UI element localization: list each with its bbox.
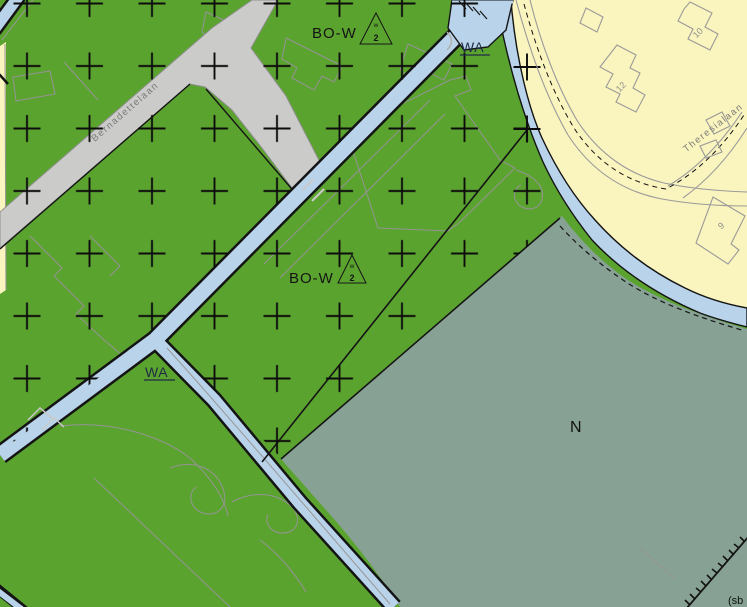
corner-note: (sb [728, 595, 743, 607]
zone-label-bo-w-top: BO-W [312, 25, 357, 42]
zone-label-bo-w-center: BO-W [289, 270, 334, 287]
zone-label-nature: N [570, 419, 582, 436]
triangle-top-number: 2 [373, 33, 378, 43]
water-label-left: WA [145, 364, 168, 380]
water-label-top: WA [461, 39, 484, 55]
zoning-map-canvas[interactable]: w 2 w 2 BO-W BO-W WA WA N Bernadettelaan… [0, 0, 747, 607]
triangle-center-number: 2 [349, 273, 354, 283]
triangle-top-letter: w [373, 22, 379, 29]
triangle-center-letter: w [349, 263, 355, 270]
